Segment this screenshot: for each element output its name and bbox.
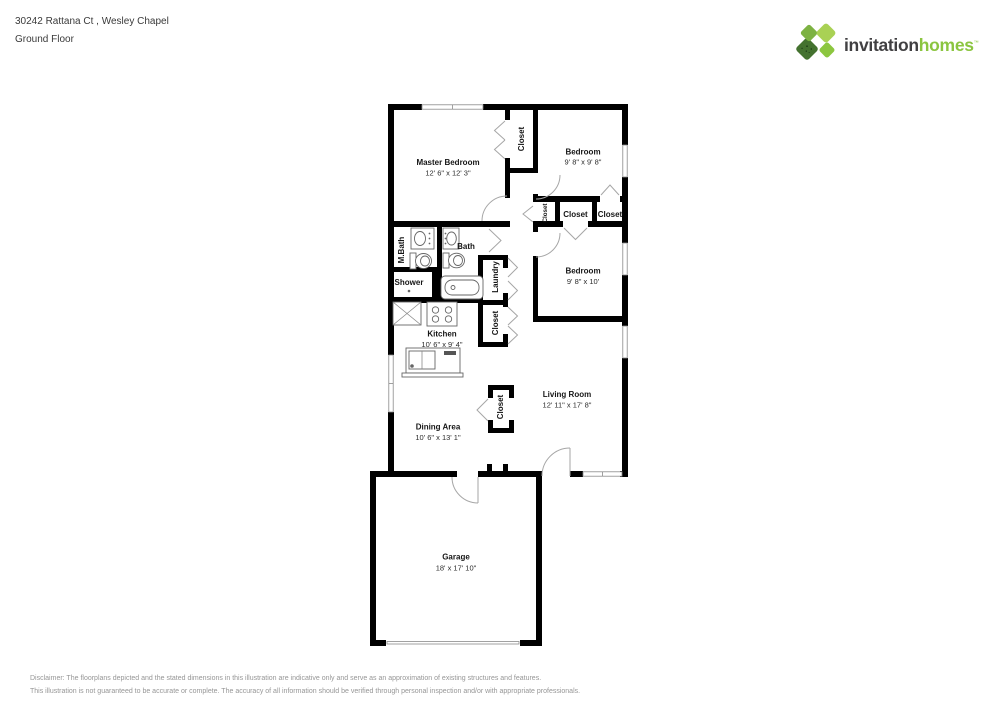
room-dims-master-bedroom: 12' 6" x 12' 3" (425, 169, 471, 178)
shower-drain-icon (408, 290, 411, 293)
stove-icon (427, 302, 457, 326)
page: 30242 Rattana Ct , Wesley Chapel Ground … (0, 0, 1000, 707)
disclaimer-line-1: Disclaimer: The floorplans depicted and … (30, 672, 580, 685)
room-label-closet-bedroom-top: Closet (598, 210, 623, 219)
disclaimer: Disclaimer: The floorplans depicted and … (30, 672, 580, 698)
room-label-master-bedroom: Master Bedroom (416, 158, 479, 167)
room-label-closet-hall-small: Closet (542, 204, 549, 223)
bath-door (489, 229, 501, 252)
bath-toilet-icon (443, 253, 465, 268)
room-dims-living-room: 12' 11" x 17' 8" (543, 401, 592, 410)
room-label-closet-master: Closet (517, 126, 526, 151)
laundry-bifold-door (508, 281, 518, 300)
room-label-shower: Shower (395, 278, 424, 287)
mbath-toilet-icon (410, 253, 432, 269)
room-label-mbath: M.Bath (397, 237, 406, 264)
room-dims-dining-area: 10' 6" x 13' 1" (415, 433, 461, 442)
room-label-bath: Bath (457, 242, 475, 251)
room-dims-kitchen: 10' 6" x 9' 4" (421, 340, 462, 349)
mbath-sink-icon (411, 228, 434, 249)
room-label-bedroom-top: Bedroom (565, 148, 600, 157)
room-label-bedroom-mid: Bedroom (565, 267, 600, 276)
window-living-right (623, 326, 627, 358)
room-label-laundry: Laundry (491, 261, 500, 293)
entry-door (542, 448, 570, 476)
bathtub-icon (441, 276, 483, 299)
window-bedroom-top-right (623, 145, 627, 177)
master-closet-bifold-door (495, 140, 506, 159)
bedroom-mid-door-arc (536, 233, 560, 257)
bedroom-top-door-arc (536, 175, 560, 199)
bedroom-mid-closet-door (564, 228, 587, 240)
laundry-bifold-door (508, 258, 518, 277)
room-label-garage: Garage (442, 553, 470, 562)
room-label-kitchen: Kitchen (427, 330, 456, 339)
master-bedroom-door-arc (482, 196, 507, 221)
room-label-closet-bedroom-mid: Closet (563, 210, 588, 219)
window-dining-left (389, 355, 393, 412)
room-dims-bedroom-top: 9' 8" x 9' 8" (565, 158, 602, 167)
room-label-dining-area: Dining Area (416, 423, 461, 432)
window-living-bottom (583, 472, 622, 476)
room-label-closet-living: Closet (496, 394, 505, 419)
window-master-top (422, 105, 483, 109)
room-dims-garage: 18' x 17' 10" (436, 564, 477, 573)
master-closet-bifold-door (495, 121, 506, 140)
room-dims-bedroom-mid: 9' 8" x 10' (567, 277, 600, 286)
hall-closet-door (523, 206, 533, 222)
kitchen-sink-counter-icon (402, 348, 463, 377)
floorplan-svg: Master Bedroom 12' 6" x 12' 3" Bedroom 9… (0, 0, 1000, 707)
garage-entry-door (452, 477, 478, 503)
living-closet-door (477, 399, 488, 421)
room-label-living-room: Living Room (543, 390, 591, 399)
garage-door (387, 642, 519, 645)
bedroom-top-closet-door (601, 185, 619, 195)
window-bedroom-mid-right (623, 243, 627, 275)
kitchen-closet-bifold-door (508, 326, 518, 344)
disclaimer-line-2: This illustration is not guaranteed to b… (30, 685, 580, 698)
room-label-closet-kitchen-hall: Closet (491, 310, 500, 335)
kitchen-closet-bifold-door (508, 307, 518, 325)
pantry-icon (393, 302, 421, 325)
